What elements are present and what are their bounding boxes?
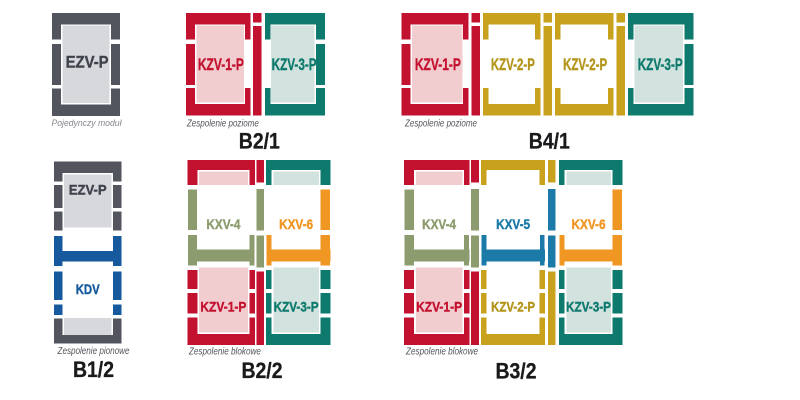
svg-text:KZV-2-P: KZV-2-P xyxy=(563,55,607,74)
svg-text:Zespolenie blokowe: Zespolenie blokowe xyxy=(188,345,261,357)
svg-text:B1/2: B1/2 xyxy=(73,357,114,382)
svg-text:KXV-4: KXV-4 xyxy=(422,216,456,232)
svg-text:KDV: KDV xyxy=(76,281,101,297)
svg-text:KZV-2-P: KZV-2-P xyxy=(491,299,535,315)
svg-text:Zespolenie poziome: Zespolenie poziome xyxy=(186,117,259,129)
svg-text:Zespolenie blokowe: Zespolenie blokowe xyxy=(405,345,478,357)
svg-text:KXV-6: KXV-6 xyxy=(279,216,313,232)
svg-text:Pojedynczy moduł: Pojedynczy moduł xyxy=(52,118,123,128)
svg-text:KZV-1-P: KZV-1-P xyxy=(416,299,462,315)
svg-text:B4/1: B4/1 xyxy=(529,129,570,154)
svg-text:KZV-2-P: KZV-2-P xyxy=(491,55,535,74)
svg-text:EZV-P: EZV-P xyxy=(66,52,109,71)
svg-text:Zespolenie poziome: Zespolenie poziome xyxy=(404,117,477,129)
svg-text:KZV-3-P: KZV-3-P xyxy=(272,55,317,74)
svg-text:B3/2: B3/2 xyxy=(496,359,537,384)
svg-text:KZV-3-P: KZV-3-P xyxy=(274,299,319,315)
svg-text:Zespolenie pionowe: Zespolenie pionowe xyxy=(57,345,130,357)
svg-text:KZV-3-P: KZV-3-P xyxy=(566,299,611,315)
svg-text:KZV-3-P: KZV-3-P xyxy=(638,55,683,74)
svg-text:KZV-1-P: KZV-1-P xyxy=(415,55,461,74)
svg-text:KZV-1-P: KZV-1-P xyxy=(200,299,246,315)
svg-text:EZV-P: EZV-P xyxy=(69,182,107,198)
svg-text:KXV-5: KXV-5 xyxy=(496,216,530,232)
svg-text:KZV-1-P: KZV-1-P xyxy=(198,55,244,74)
svg-text:B2/1: B2/1 xyxy=(239,129,280,154)
svg-text:B2/2: B2/2 xyxy=(242,358,283,383)
svg-text:KXV-6: KXV-6 xyxy=(572,216,606,232)
svg-text:KXV-4: KXV-4 xyxy=(206,216,240,232)
